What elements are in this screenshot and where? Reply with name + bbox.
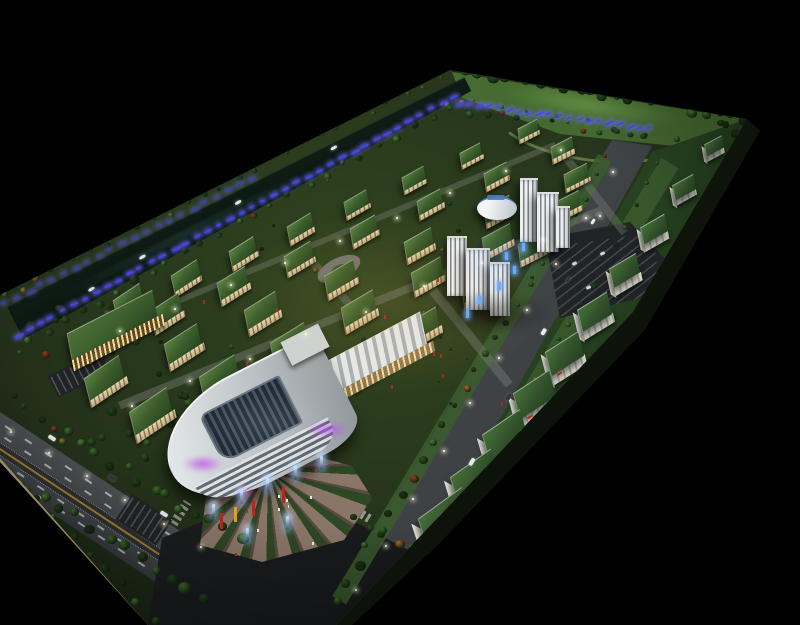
- boulevard-tree: [54, 504, 63, 512]
- park-tree: [59, 438, 66, 445]
- factory-building: [402, 166, 426, 192]
- avenue-tree: [598, 259, 602, 263]
- boundary-tree: [647, 99, 655, 106]
- riverbank-tree: [31, 274, 40, 283]
- riverbank-tree: [420, 85, 425, 90]
- edge-tree: [99, 564, 110, 574]
- plaza-pole-glow-head: [241, 523, 254, 533]
- factory-building: [164, 323, 202, 366]
- avenue-tree: [429, 439, 437, 446]
- intersection-verge-tree: [350, 514, 356, 520]
- avenue-tree: [334, 597, 342, 604]
- courtyard-tree: [447, 201, 452, 205]
- park-tree: [141, 454, 148, 460]
- warehouse-red-sign: [437, 544, 443, 551]
- edge-tree: [131, 598, 140, 606]
- avenue-tree: [603, 154, 607, 158]
- avenue-tree: [419, 456, 428, 464]
- park-tree: [87, 438, 97, 447]
- riverbank-tree: [376, 142, 383, 148]
- courtyard-tree: [228, 173, 232, 177]
- mall-roof-sheen: [205, 388, 335, 458]
- promenade-tree: [565, 120, 571, 125]
- boundary-tree: [701, 110, 711, 119]
- riverbank-tree: [411, 121, 420, 130]
- riverbank-tree: [185, 199, 192, 206]
- courtyard-tree: [130, 189, 135, 193]
- riverbank-tree: [1, 290, 9, 298]
- riverbank-tree: [60, 314, 71, 324]
- lawn-bush: [674, 136, 681, 142]
- riverbank-tree: [202, 191, 208, 197]
- boulevard-tree: [64, 427, 74, 436]
- boundary-tree: [558, 85, 569, 95]
- pedestrian: [310, 496, 312, 499]
- riverbank-tree: [118, 229, 125, 235]
- riverbank-tree: [46, 265, 54, 273]
- boundary-tree: [666, 100, 675, 108]
- shopfront-banner: [501, 402, 503, 406]
- boundary-tree: [726, 110, 734, 118]
- plaza-red-banner: [220, 513, 223, 529]
- park-tree: [54, 318, 59, 323]
- factory-building: [460, 142, 482, 166]
- boulevard-tree: [21, 403, 27, 408]
- riverbank-tree: [251, 212, 258, 219]
- riverbank-tree: [68, 254, 76, 262]
- boulevard-tree: [51, 426, 57, 432]
- lawn-bush: [640, 134, 646, 140]
- riverbank-tree: [266, 203, 273, 210]
- tower-cool-ambience: [455, 230, 550, 290]
- boulevard-tree: [138, 552, 148, 561]
- avenue-tree: [384, 510, 391, 517]
- pedestrian: [235, 553, 237, 556]
- street-light: [505, 170, 507, 172]
- boulevard-tree: [89, 448, 98, 456]
- boulevard-tree: [84, 525, 95, 534]
- boulevard-tree: [11, 393, 18, 399]
- office-tower: [556, 206, 570, 248]
- car: [108, 474, 117, 482]
- boundary-tree: [585, 88, 593, 96]
- riverbank-tree: [216, 187, 222, 192]
- riverbank-tree: [251, 167, 258, 174]
- promenade-tree: [549, 118, 555, 123]
- riverbank-tree: [319, 132, 324, 137]
- avenue-tree: [408, 593, 417, 602]
- riverbank-tree: [149, 269, 158, 278]
- promenade-tree: [499, 110, 506, 116]
- plaza-pole-glow-head: [289, 461, 302, 471]
- pedestrian: [286, 499, 288, 502]
- riverbank-tree: [267, 154, 273, 159]
- riverbank-tree: [236, 217, 245, 225]
- boundary-tree: [498, 70, 512, 83]
- pedestrian: [278, 508, 280, 511]
- riverbank-tree: [215, 232, 223, 240]
- avenue-tree: [423, 572, 433, 581]
- avenue-tree: [635, 203, 640, 207]
- boundary-tree: [716, 109, 725, 117]
- avenue-tree: [436, 550, 446, 559]
- pedestrian: [247, 510, 249, 513]
- riverbank-tree: [45, 327, 56, 337]
- plaza-pole-glow-head: [207, 499, 220, 509]
- courtyard-tree: [229, 344, 234, 348]
- riverbank-tree: [95, 299, 106, 310]
- riverbank-tree: [168, 211, 175, 218]
- riverbank-tree: [447, 64, 453, 69]
- promenade-tree: [513, 114, 520, 121]
- avenue-tree: [591, 283, 597, 289]
- plaza-red-banner: [252, 500, 255, 516]
- avenue-tree: [361, 542, 367, 548]
- boulevard-tree: [199, 594, 208, 602]
- pedestrian: [278, 495, 280, 498]
- boulevard-tree: [77, 439, 86, 447]
- mall-purple-glow-west: [182, 456, 224, 472]
- car: [48, 434, 57, 442]
- boulevard-tree: [178, 582, 191, 594]
- boundary-tree: [520, 75, 532, 86]
- pedestrian: [312, 542, 314, 545]
- promenade-tree: [447, 106, 453, 112]
- lawn-bush: [614, 129, 620, 134]
- avenue-tree: [341, 579, 350, 587]
- riverbank-tree: [430, 114, 438, 122]
- boulevard-tree: [39, 416, 46, 422]
- promenade-tree: [580, 128, 586, 134]
- park-tree: [107, 407, 117, 416]
- boundary-tree: [471, 69, 482, 79]
- boundary-tree: [459, 66, 471, 77]
- courtyard-tree: [326, 179, 330, 182]
- street-light: [174, 308, 176, 310]
- riverbank-tree: [86, 245, 94, 253]
- avenue-tree: [355, 561, 365, 570]
- plaza-pole-glow-head: [315, 451, 328, 461]
- avenue-tree: [438, 421, 445, 427]
- boundary-tree: [613, 92, 622, 100]
- park-tree: [42, 351, 50, 358]
- edge-tree: [71, 533, 79, 540]
- riverbank-tree: [406, 91, 411, 96]
- boundary-tree: [512, 74, 521, 82]
- boundary-tree: [678, 101, 687, 110]
- courtyard-tree: [272, 224, 276, 227]
- podium-roof-sign: [487, 195, 505, 200]
- site-baseboard: [0, 0, 800, 625]
- plaza-pole-glow-head: [281, 511, 294, 521]
- park-tree: [17, 350, 22, 355]
- street-light: [449, 192, 451, 194]
- riverbank-tree: [370, 110, 376, 116]
- park-tree: [98, 434, 106, 441]
- intersection-verge-tree: [395, 540, 404, 548]
- boundary-tree: [622, 95, 634, 106]
- courtyard-tree: [158, 340, 163, 344]
- riverbank-tree: [383, 100, 388, 105]
- shopfront-banner: [203, 300, 205, 304]
- edge-tree: [119, 580, 126, 587]
- boundary-tree: [686, 108, 698, 119]
- avenue-tree: [399, 491, 408, 499]
- boulevard-tree: [107, 535, 117, 544]
- plaza-yellow-banner: [234, 507, 237, 522]
- riverbank-tree: [355, 154, 363, 162]
- street-light: [443, 450, 445, 452]
- boulevard-tree: [131, 478, 141, 487]
- round-podium-building: [477, 196, 517, 220]
- factory-building: [484, 162, 509, 188]
- avenue-tree: [399, 607, 407, 614]
- avenue-tree: [565, 322, 571, 327]
- pedestrian: [257, 529, 259, 532]
- edge-tree: [87, 552, 94, 558]
- boundary-tree: [636, 95, 644, 102]
- model-photo-stage: [0, 0, 800, 625]
- boulevard-tree: [105, 462, 115, 471]
- plaza-pole-glow-head: [235, 485, 248, 495]
- pedestrian: [288, 505, 290, 508]
- street-light: [585, 217, 587, 219]
- promenade-tree: [465, 111, 474, 119]
- plaza-pole-glow-head: [261, 473, 274, 483]
- riverbank-tree: [151, 214, 158, 221]
- avenue-tree: [410, 475, 418, 483]
- promenade-tree: [484, 112, 492, 119]
- avenue-tree: [444, 536, 454, 545]
- riverbank-tree: [333, 125, 340, 131]
- riverbank-tree: [350, 113, 357, 120]
- riverbank-tree: [303, 138, 309, 144]
- boundary-tree: [449, 61, 461, 73]
- street-light: [555, 263, 557, 265]
- street-light: [412, 498, 414, 500]
- riverbank-tree: [133, 224, 141, 232]
- boulevard-tree: [167, 574, 179, 585]
- riverbank-tree: [195, 239, 203, 247]
- park-tree: [156, 371, 162, 376]
- riverbank-tree: [392, 134, 401, 143]
- boundary-tree: [547, 78, 558, 89]
- boundary-tree: [596, 92, 607, 102]
- boulevard-tree: [126, 463, 134, 470]
- boulevard-tree: [70, 508, 79, 516]
- boundary-tree: [535, 79, 546, 89]
- riverbank-tree: [307, 181, 316, 190]
- pedestrian: [315, 469, 317, 472]
- promenade-tree: [627, 132, 634, 138]
- plaza-red-banner: [282, 487, 285, 503]
- riverbank-tree: [283, 191, 291, 199]
- street-light: [124, 499, 126, 501]
- edge-tree: [152, 617, 160, 624]
- riverbank-tree: [284, 149, 290, 155]
- promenade-tree: [596, 130, 602, 136]
- street-light: [599, 215, 601, 217]
